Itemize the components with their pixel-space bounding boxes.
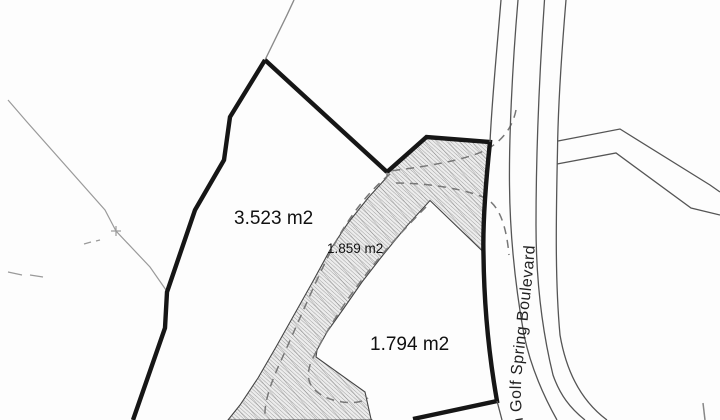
svg-text:3.523 m2: 3.523 m2 — [234, 208, 313, 229]
svg-text:1.859 m2: 1.859 m2 — [327, 241, 383, 256]
svg-text:1.794 m2: 1.794 m2 — [370, 334, 449, 355]
